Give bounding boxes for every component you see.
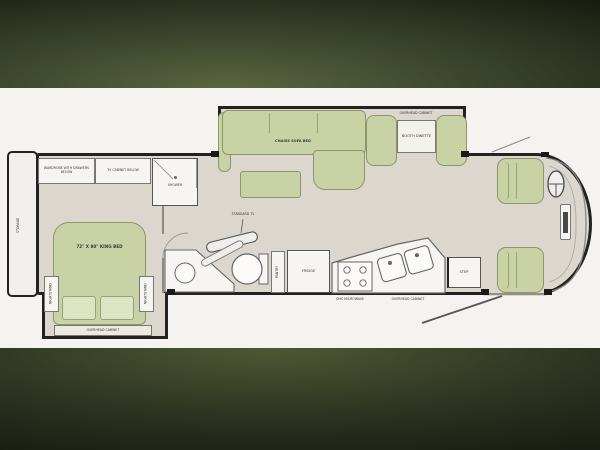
dinette-bench-left	[366, 115, 397, 166]
shower-label: SHOWER	[160, 182, 190, 190]
pantry-label: PANTRY	[274, 254, 282, 290]
passenger-seat-crease	[516, 252, 517, 289]
ottoman-table	[240, 171, 301, 198]
king-bed-label: 72" X 80" KING BED	[56, 240, 143, 254]
passenger-seat	[497, 247, 544, 293]
chaise-sofa-bed	[222, 110, 366, 155]
floorplan-photo: STORAGE WARDROBE WITH DRAWERS BELOW TV C…	[0, 0, 600, 450]
chaise-sofa-bed-label: CHAISE SOFA BED	[248, 137, 338, 146]
dinette-bench-right	[436, 115, 467, 166]
passenger-seat-back	[500, 251, 509, 290]
tv-cabinet-label: TV CABINET BELOW	[103, 158, 143, 184]
driver-seat	[497, 158, 544, 204]
lav-label: LAV	[177, 270, 193, 277]
fridge-label: FRIDGE	[290, 266, 327, 276]
ohc-microwave-label: OHC MICROWAVE	[324, 296, 376, 304]
sofa-cushion-divider	[317, 113, 318, 133]
pillow	[62, 296, 96, 320]
dinette-overhead-cabinet-label: OVERHEAD CABINET	[382, 110, 450, 118]
booth-dinette-label: BOOTH DINETTE	[399, 126, 434, 146]
kitchen-overhead-cabinet-label: OVERHEAD CABINET	[376, 296, 440, 304]
step-label: STEP	[451, 268, 477, 277]
chaise-section	[313, 150, 365, 190]
bedroom-overhead-cabinet-label: OVERHEAD CABINET	[56, 326, 150, 335]
letterbox-bottom	[0, 348, 600, 450]
storage-label: STORAGE	[14, 200, 24, 250]
pillow	[100, 296, 134, 320]
awning-line	[492, 137, 530, 152]
shower-head-icon	[174, 176, 177, 179]
nightstand-left-label: NIGHTSTAND	[47, 278, 56, 310]
standard-tv-label: STANDARD TV	[220, 211, 266, 219]
nightstand-right-label: NIGHTSTAND	[142, 278, 151, 310]
driver-seat-back	[500, 162, 509, 201]
dash-tv	[560, 204, 571, 240]
wardrobe-label: WARDROBE WITH DRAWERS BELOW	[39, 158, 94, 184]
dash-tv-screen	[563, 212, 568, 233]
letterbox-top	[0, 0, 600, 88]
driver-seat-crease	[516, 163, 517, 200]
sofa-cushion-divider	[269, 113, 270, 133]
